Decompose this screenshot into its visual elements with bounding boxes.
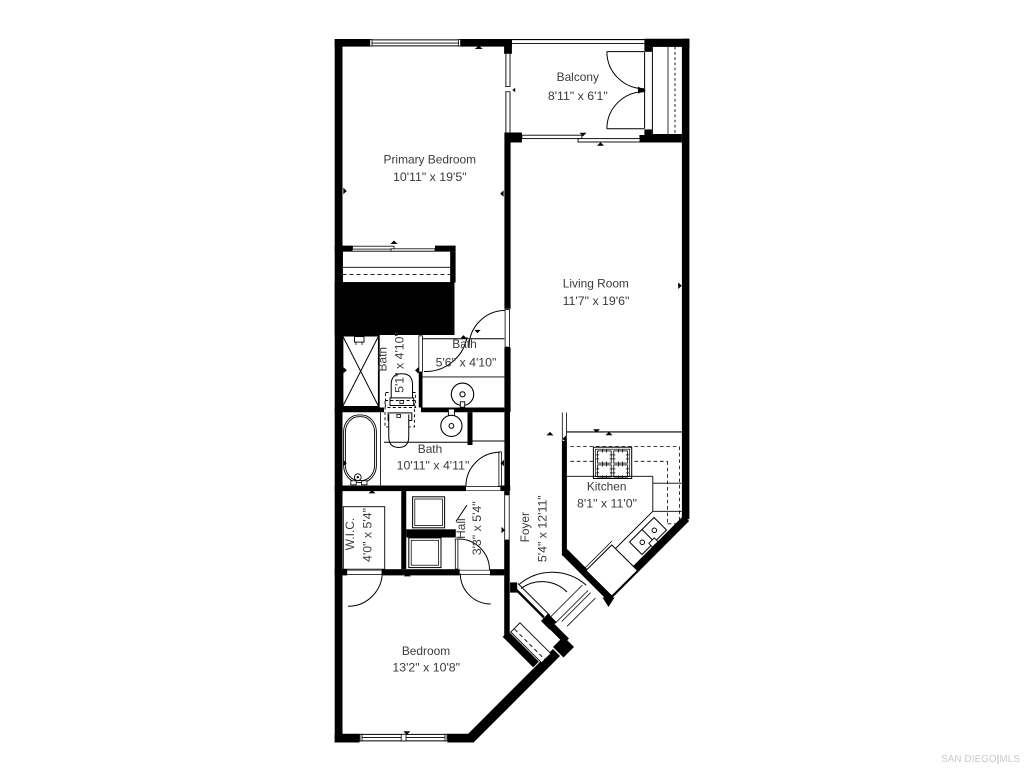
svg-text:8'11" x 6'1": 8'11" x 6'1" — [548, 89, 608, 103]
svg-text:Foyer: Foyer — [518, 512, 532, 542]
svg-text:10'11" x 4'11": 10'11" x 4'11" — [397, 458, 470, 472]
svg-text:Bath: Bath — [418, 442, 442, 456]
svg-text:3'3" x 5'4": 3'3" x 5'4" — [470, 501, 484, 555]
svg-text:10'11" x 19'5": 10'11" x 19'5" — [393, 170, 467, 184]
svg-text:5'6" x 4'10": 5'6" x 4'10" — [436, 355, 497, 369]
svg-text:W.I.C.: W.I.C. — [343, 518, 357, 550]
svg-text:Bath: Bath — [376, 347, 390, 371]
svg-text:13'2" x 10'8": 13'2" x 10'8" — [392, 661, 460, 675]
svg-text:8'1" x 11'0": 8'1" x 11'0" — [577, 497, 637, 511]
svg-text:Hall: Hall — [454, 518, 468, 538]
svg-text:5'1" x 4'10": 5'1" x 4'10" — [392, 332, 406, 393]
svg-text:11'7" x 19'6": 11'7" x 19'6" — [563, 294, 630, 308]
svg-text:Living Room: Living Room — [563, 276, 629, 290]
svg-text:Kitchen: Kitchen — [587, 480, 627, 494]
svg-text:Primary Bedroom: Primary Bedroom — [384, 152, 477, 166]
svg-text:Balcony: Balcony — [557, 70, 599, 84]
svg-text:Bath: Bath — [452, 337, 476, 351]
svg-text:Bedroom: Bedroom — [402, 644, 450, 658]
svg-text:SAN DIEGO|MLS: SAN DIEGO|MLS — [941, 754, 1020, 765]
svg-text:4'0" x 5'4": 4'0" x 5'4" — [360, 508, 374, 562]
svg-text:5'4" x 12'11": 5'4" x 12'11" — [535, 495, 549, 562]
